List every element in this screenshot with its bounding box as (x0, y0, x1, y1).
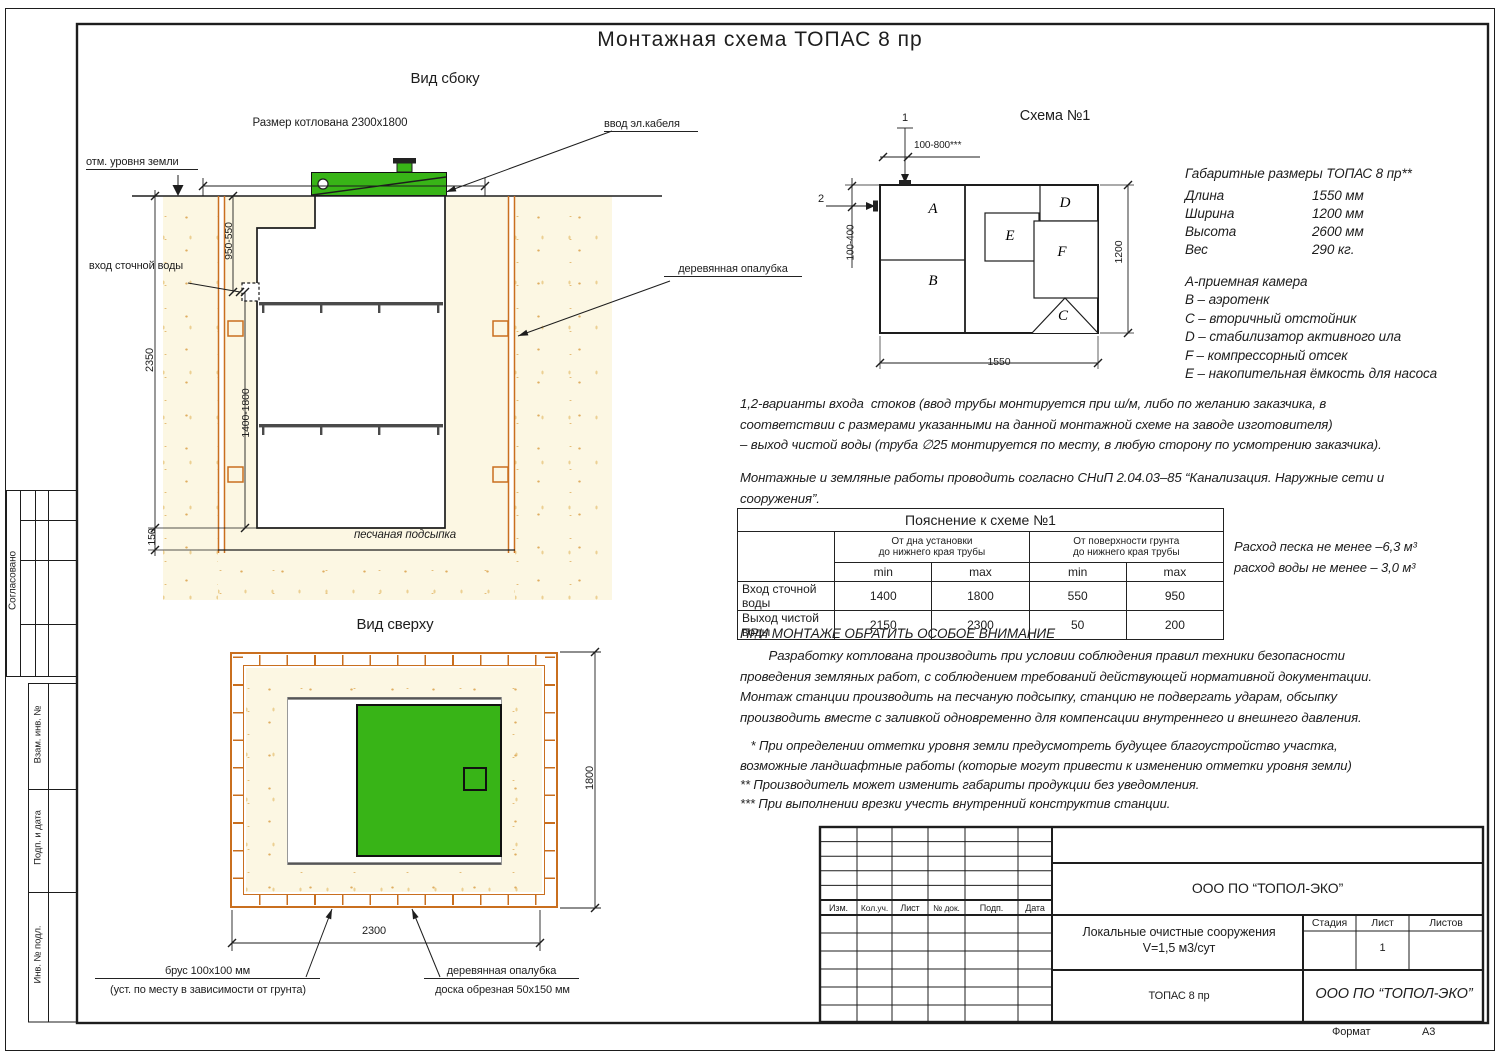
rev-header-list: Лист (892, 903, 928, 913)
table-min: min (835, 563, 932, 582)
rev-header-ndok: № док. (928, 903, 965, 913)
marker-2: 2 (814, 193, 828, 205)
spec-value: 1550 мм (1312, 188, 1364, 203)
table-min: min (1029, 563, 1126, 582)
dim-1800: 1800 (584, 728, 596, 828)
spec-value: 290 кг. (1312, 242, 1354, 257)
note-variants: 1,2-варианты входа стоков (ввод трубы мо… (740, 394, 1485, 456)
table-cell: 2300 (932, 611, 1029, 640)
table-cell: 200 (1126, 611, 1223, 640)
table-group-2: От поверхности грунта до нижнего края тр… (1029, 532, 1223, 563)
top-view-title: Вид сверху (325, 616, 465, 633)
sand-bed-label: песчаная подсыпка (325, 529, 485, 541)
explanation-table: Пояснение к схеме №1 От дна установки до… (737, 508, 1224, 640)
dim-950-550: 950-550 (223, 191, 235, 291)
side-view-title: Вид сбоку (360, 70, 530, 87)
ground-level-label: отм. уровня земли (86, 156, 198, 170)
stamp-sheet-no: 1 (1356, 942, 1409, 954)
board-label: доска обрезная 50x150 мм (420, 984, 585, 996)
spec-value: 1200 мм (1312, 206, 1364, 221)
strip-inv-podl: Инв. № подл. (33, 895, 44, 1015)
tank-body (257, 228, 445, 528)
footnote-1: * При определении отметки уровня земли п… (740, 736, 1485, 776)
table-cell: 950 (1126, 582, 1223, 611)
format-value: А3 (1422, 1026, 1435, 1038)
table-cell: 1400 (835, 582, 932, 611)
stamp-product: ТОПАС 8 пр (1055, 990, 1303, 1002)
specs-heading: Габаритные размеры ТОПАС 8 пр** (1185, 166, 1412, 181)
table-row-label: Вход сточной воды (738, 582, 835, 611)
note-water: расход воды не менее – 3,0 м³ (1234, 560, 1415, 575)
stamp-company: ООО ПО “ТОПОЛ-ЭКО” (1052, 880, 1483, 896)
rev-header-podp: Подп. (965, 903, 1018, 913)
attention-body: Разработку котлована производить при усл… (740, 646, 1490, 728)
legend-item: Е – накопительная ёмкость для насоса (1185, 366, 1437, 381)
legend-item: А-приемная камера (1185, 274, 1307, 289)
legend-item: F – компрессорный отсек (1185, 348, 1348, 363)
dim-100-400: 100-400 (846, 193, 857, 293)
stamp-stage-label: Стадия (1303, 917, 1356, 929)
stamp-object-line1: Локальные очистные сооружения (1055, 925, 1303, 939)
topview-plank-bottom (233, 894, 555, 905)
table-cell: 1800 (932, 582, 1029, 611)
marker-1: 1 (898, 112, 912, 124)
legend-item: С – вторичный отстойник (1185, 311, 1356, 326)
format-label: Формат (1332, 1026, 1370, 1038)
legend-item: D – стабилизатор активного ила (1185, 329, 1401, 344)
strip-agreed: Согласовано (8, 521, 19, 641)
rev-header-koluch: Кол.уч. (857, 903, 892, 913)
compartment-f: F (1049, 244, 1075, 261)
dim-1400-1800: 1400-1800 (240, 363, 252, 463)
schema-title: Схема №1 (985, 108, 1125, 124)
table-max: max (1126, 563, 1223, 582)
table-group-1: От дна установки до нижнего края трубы (835, 532, 1029, 563)
compartment-d: D (1052, 195, 1078, 212)
beam-label: брус 100x100 мм (95, 965, 320, 979)
soil-right (515, 196, 612, 600)
page-title: Монтажная схема ТОПАС 8 пр (480, 28, 1040, 52)
stamp-sheets-label: Листов (1409, 917, 1483, 929)
dim-1200: 1200 (1113, 202, 1125, 302)
table-title: Пояснение к схеме №1 (738, 509, 1224, 532)
dim-1550: 1550 (964, 356, 1034, 368)
beam-note: (уст. по месту в зависимости от грунта) (88, 984, 328, 996)
compartment-a: A (920, 201, 946, 218)
drawing-sheet: Монтажная схема ТОПАС 8 пр Вид сбоку Раз… (0, 0, 1500, 1061)
footnote-3: *** При выполнении врезки учесть внутрен… (740, 796, 1170, 811)
note-snip: Монтажные и земляные работы проводить со… (740, 468, 1485, 509)
dim-2300: 2300 (344, 925, 404, 937)
stamp-company-2: ООО ПО “ТОПОЛ-ЭКО” (1305, 986, 1483, 1002)
table-cell: 50 (1029, 611, 1126, 640)
rev-header-data: Дата (1018, 903, 1052, 913)
spec-label: Длина (1185, 188, 1224, 203)
compartment-e: E (997, 228, 1023, 245)
cable-entry-label: ввод эл.кабеля (604, 118, 698, 132)
tank-hatch (463, 767, 487, 791)
inlet-label: вход сточной воды (82, 259, 190, 273)
table-row-label: Выход чистой воды (738, 611, 835, 640)
formwork-label-side: деревянная опалубка (664, 263, 802, 277)
compartment-c: C (1050, 308, 1076, 325)
table-max: max (932, 563, 1029, 582)
compartment-b: B (920, 273, 946, 290)
topview-plank-left (233, 655, 243, 905)
table-cell: 2150 (835, 611, 932, 640)
strip-vzam-inv: Взам. инв. № (33, 675, 44, 795)
topview-plank-top (233, 655, 555, 665)
soil-left (163, 196, 218, 600)
note-sand: Расход песка не менее –6,3 м³ (1234, 539, 1417, 554)
spec-label: Высота (1185, 224, 1236, 239)
topview-plank-right (545, 655, 555, 905)
tank-lid-side (311, 172, 447, 196)
soil-bottom (218, 550, 515, 600)
table-cell: 550 (1029, 582, 1126, 611)
strip-podp-data: Подп. и дата (33, 778, 44, 898)
rev-header-izm: Изм. (820, 903, 857, 913)
tank-neck (315, 196, 445, 230)
spec-label: Ширина (1185, 206, 1234, 221)
dim-100-800: 100-800*** (914, 140, 986, 151)
stamp-sheet-label: Лист (1356, 917, 1409, 929)
footnote-2: ** Производитель может изменить габариты… (740, 777, 1199, 792)
dim-2350: 2350 (144, 310, 156, 410)
dim-150: 150 (146, 487, 158, 587)
spec-value: 2600 мм (1312, 224, 1364, 239)
spec-label: Вес (1185, 242, 1208, 257)
legend-item: В – аэротенк (1185, 292, 1269, 307)
pit-size-dim: Размер котлована 2300x1800 (230, 117, 430, 129)
formwork-label-top: деревянная опалубка (424, 965, 579, 979)
stamp-object-line2: V=1,5 м3/сут (1055, 941, 1303, 955)
